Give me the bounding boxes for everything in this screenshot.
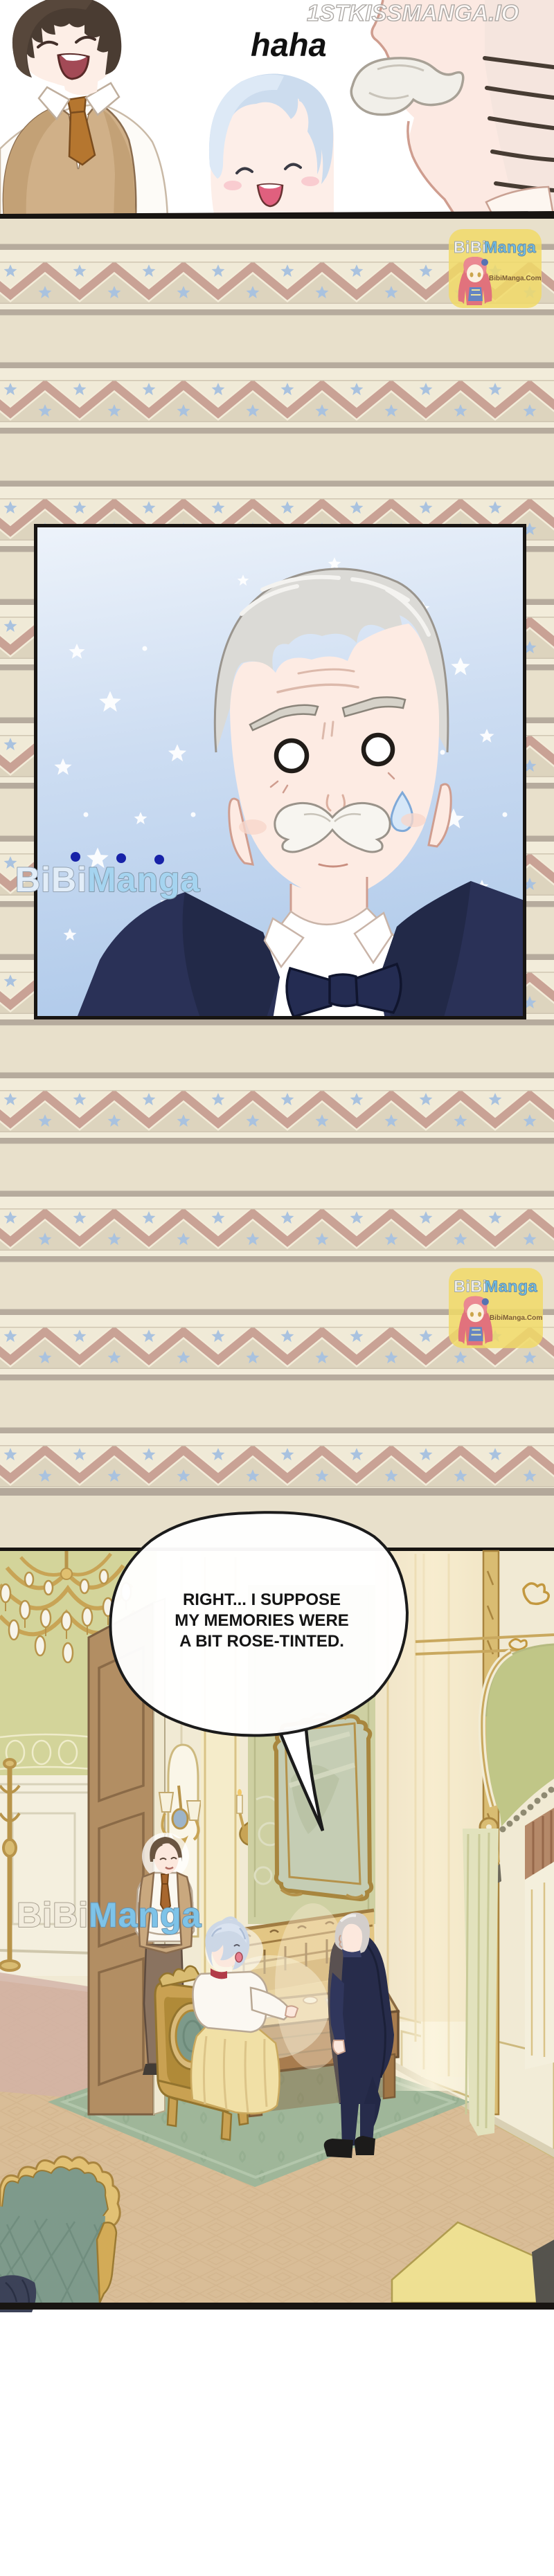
svg-text:BiBi: BiBi xyxy=(17,1896,89,1934)
svg-text:Manga: Manga xyxy=(89,1896,202,1934)
svg-text:BiBi: BiBi xyxy=(454,1278,488,1296)
svg-text:BiBi: BiBi xyxy=(454,238,487,256)
svg-text:MY MEMORIES WERE: MY MEMORIES WERE xyxy=(175,1611,349,1630)
svg-text:BibiManga.Com: BibiManga.Com xyxy=(489,275,542,282)
svg-text:BiBi: BiBi xyxy=(15,860,87,899)
svg-text:A BIT ROSE-TINTED.: A BIT ROSE-TINTED. xyxy=(179,1632,344,1651)
svg-text:RIGHT... I SUPPOSE: RIGHT... I SUPPOSE xyxy=(183,1590,341,1609)
svg-text:Manga: Manga xyxy=(485,1278,538,1296)
svg-text:Manga: Manga xyxy=(484,238,536,256)
svg-text:haha: haha xyxy=(251,26,327,63)
svg-text:Manga: Manga xyxy=(87,860,201,899)
svg-text:1STKISSMANGA.IO: 1STKISSMANGA.IO xyxy=(307,0,519,26)
svg-text:BibiManga.Com: BibiManga.Com xyxy=(490,1314,543,1322)
